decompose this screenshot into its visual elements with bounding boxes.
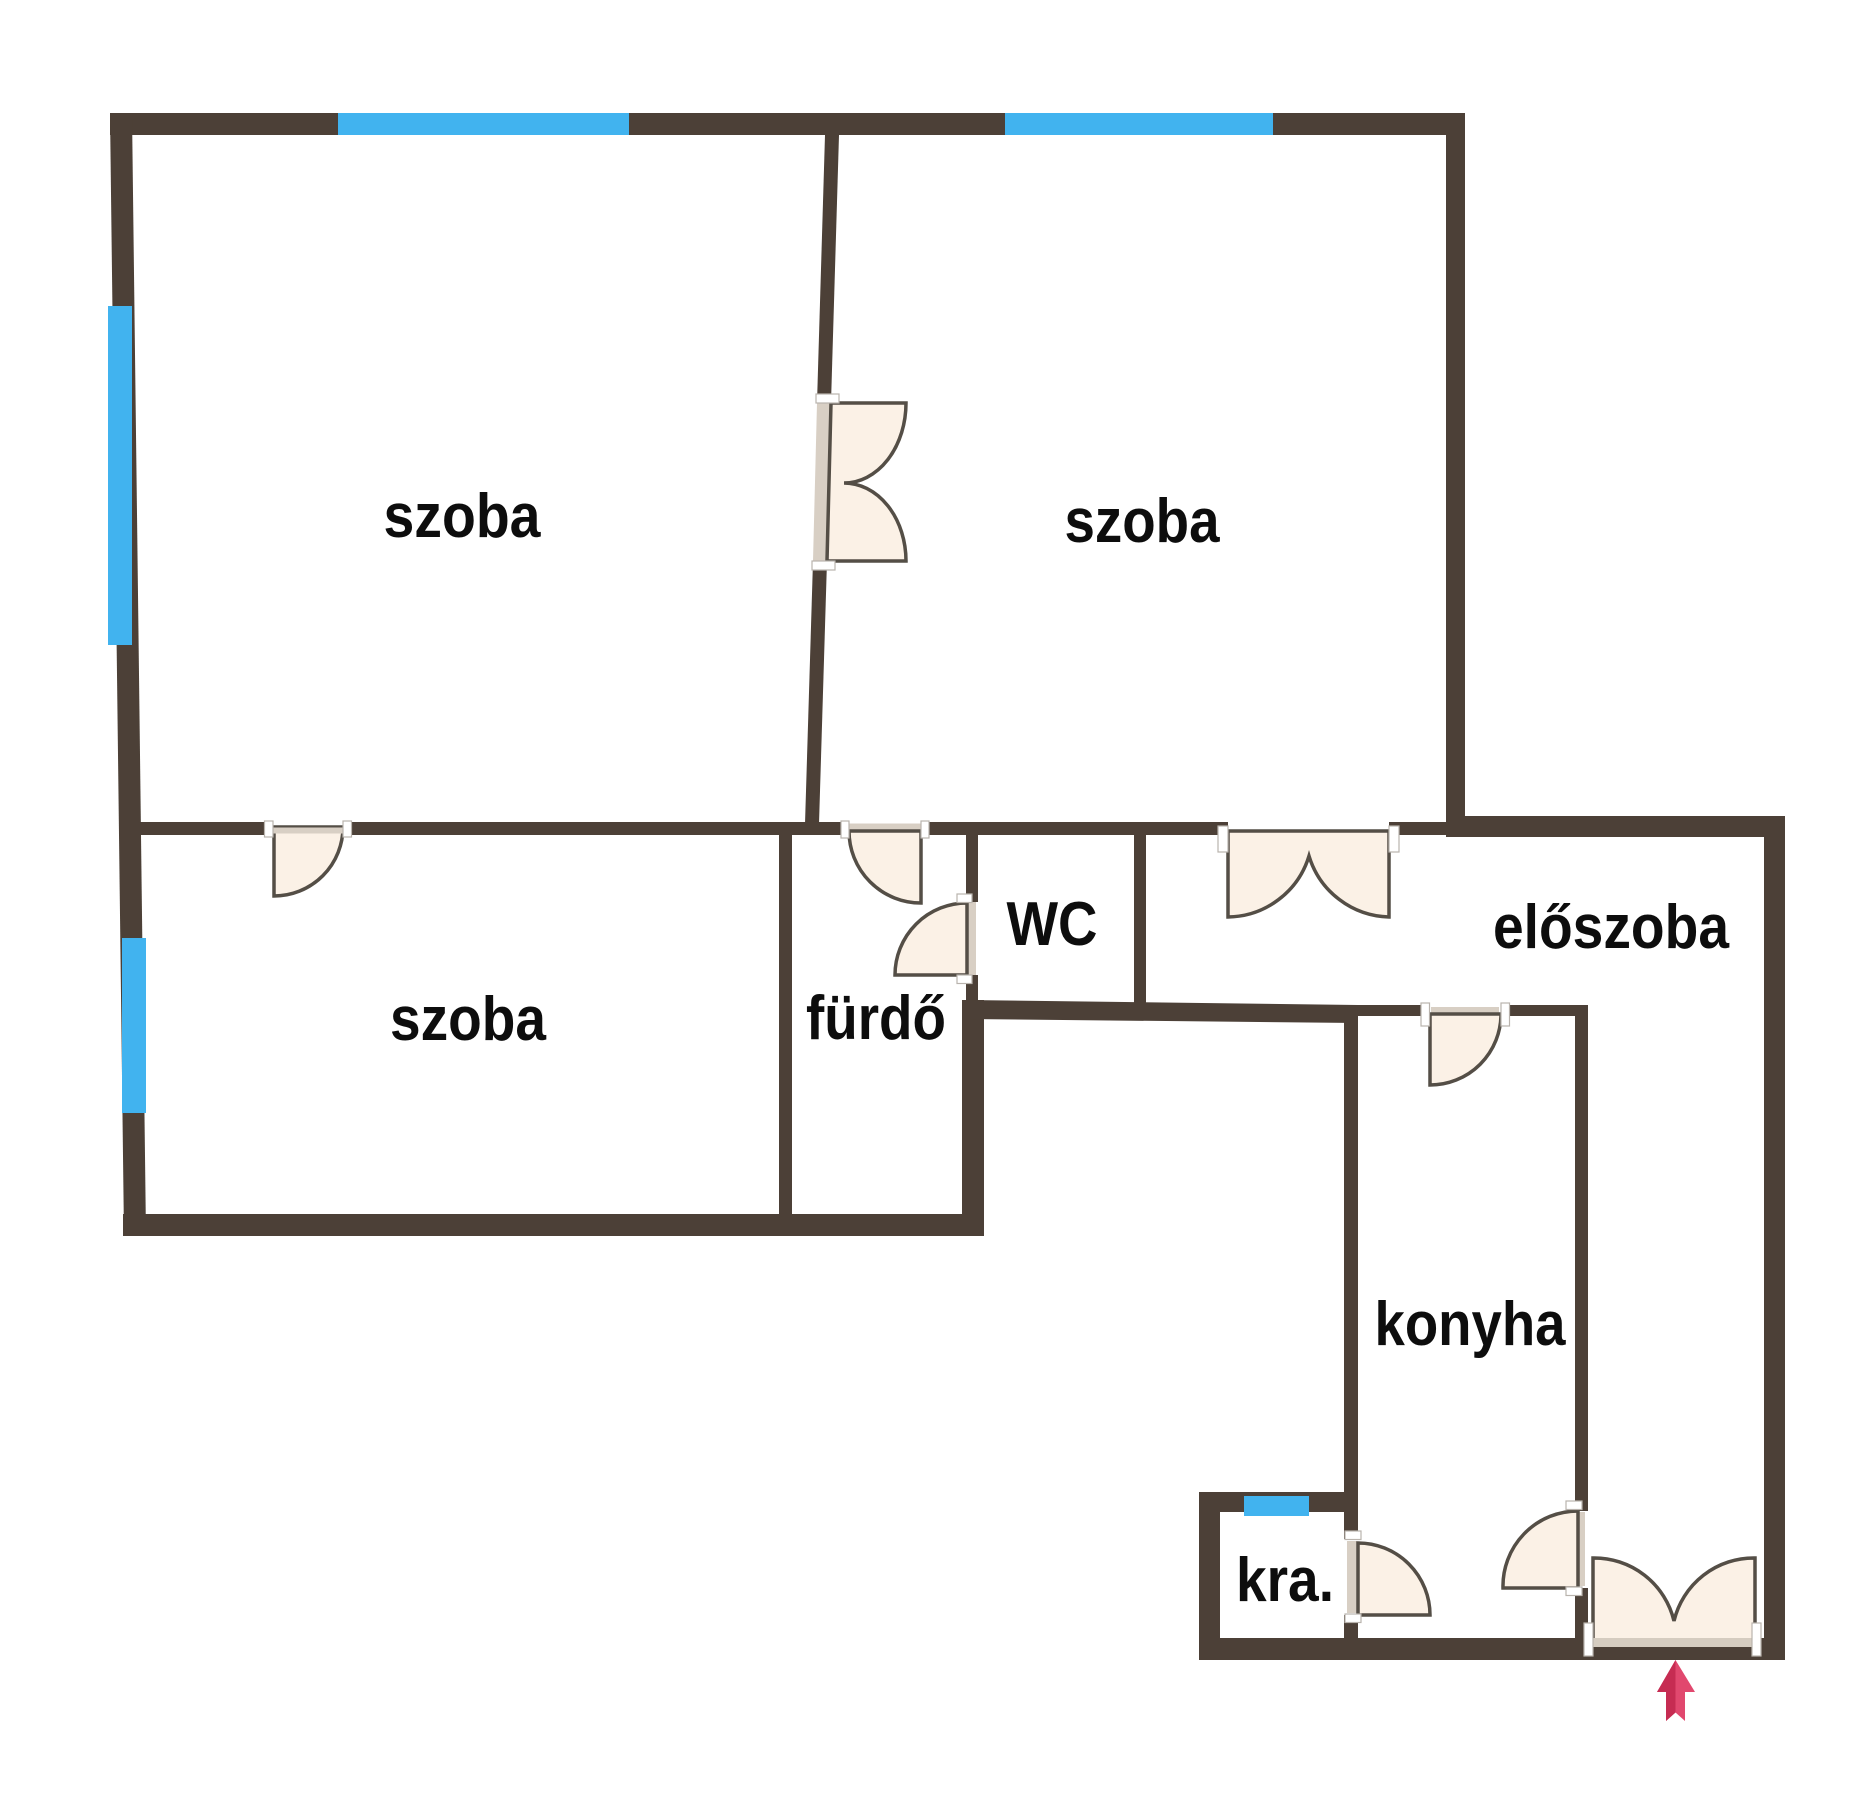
svg-text:szoba: szoba (1065, 487, 1220, 556)
svg-text:előszoba: előszoba (1493, 893, 1729, 962)
svg-text:kra.: kra. (1236, 1546, 1334, 1615)
svg-text:fürdő: fürdő (806, 984, 946, 1053)
svg-text:szoba: szoba (390, 985, 546, 1054)
svg-text:WC: WC (1007, 890, 1098, 959)
svg-text:konyha: konyha (1375, 1290, 1566, 1359)
svg-text:szoba: szoba (384, 482, 541, 551)
